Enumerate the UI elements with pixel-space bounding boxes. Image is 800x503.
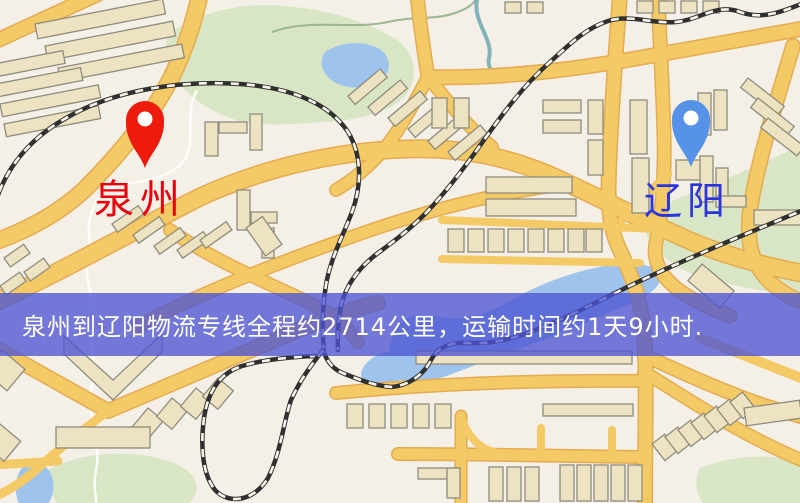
origin-label: 泉州 [94, 180, 186, 220]
origin-pin-hole [138, 112, 153, 127]
map-view: 泉州 辽阳 泉州到辽阳物流专线全程约2714公里，运输时间约1天9小时. [0, 0, 800, 503]
destination-pin-hole [684, 111, 699, 126]
route-info-banner: 泉州到辽阳物流专线全程约2714公里，运输时间约1天9小时. [0, 293, 800, 356]
map-canvas[interactable] [0, 0, 800, 503]
route-info-text: 泉州到辽阳物流专线全程约2714公里，运输时间约1天9小时. [22, 307, 703, 342]
destination-label: 辽阳 [644, 182, 730, 220]
